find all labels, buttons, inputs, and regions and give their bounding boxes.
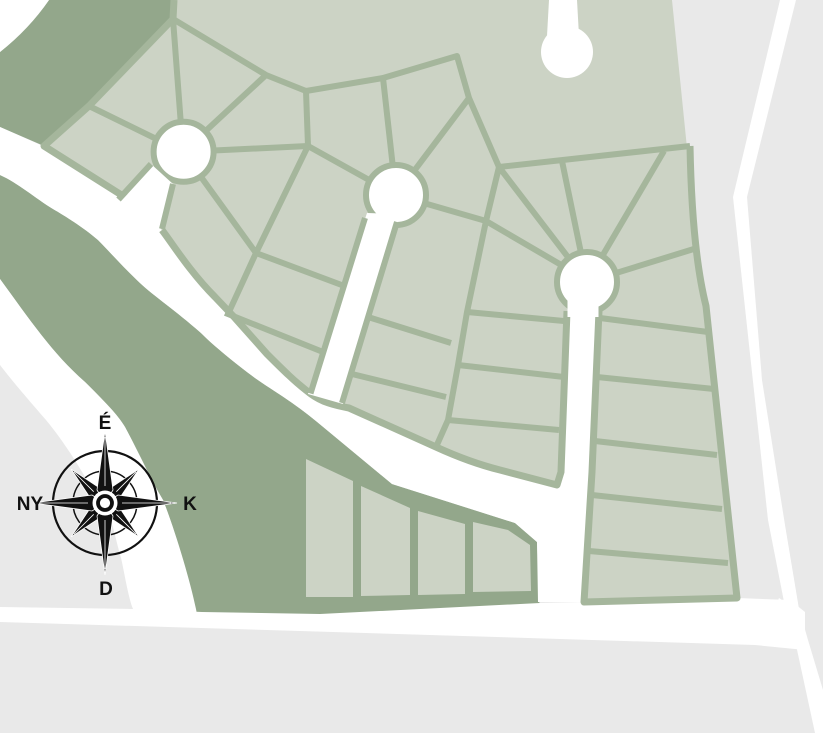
svg-text:É: É [99,412,112,434]
svg-text:NY: NY [17,494,44,515]
svg-text:K: K [183,494,197,515]
svg-text:D: D [99,579,113,600]
